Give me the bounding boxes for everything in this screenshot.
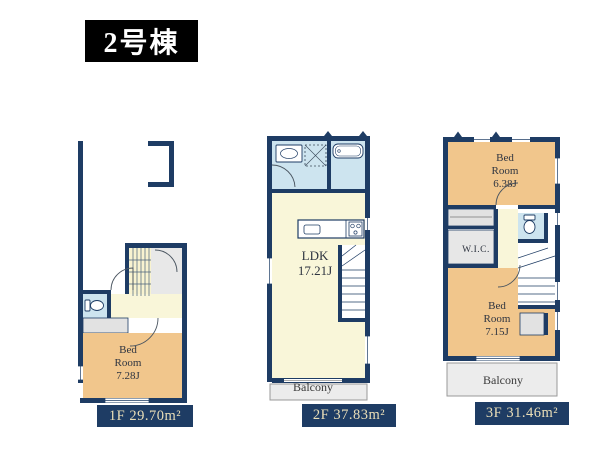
room-label-balcony-2f: Balcony	[278, 381, 348, 395]
stove-icon-2f	[349, 222, 362, 236]
room-label-ldk-2f: LDK 17.21J	[281, 248, 349, 278]
bathtub-icon-2f	[333, 144, 363, 158]
building-title: 2号棟	[85, 20, 198, 62]
room-label-bedroom-1f: Bed Room 7.28J	[95, 344, 161, 382]
toilet-icon-3f	[524, 215, 535, 234]
closet-1f	[83, 318, 128, 333]
room-label-wic-3f: W.I.C.	[446, 245, 506, 256]
vent-marks-3f	[454, 132, 500, 138]
kitchen-counter-2f	[298, 220, 364, 238]
floor-area-label-1f: 1F 29.70m²	[97, 405, 193, 427]
room-label-balcony-3f: Balcony	[468, 374, 538, 388]
vent-marks-2f	[324, 131, 367, 136]
floor-area-label-3f: 3F 31.46m²	[475, 402, 569, 425]
floorplan-page: 2号棟	[0, 0, 600, 450]
floor-area-label-2f: 2F 37.83m²	[302, 404, 396, 427]
sink-icon-2f	[276, 145, 302, 162]
room-label-bedroom-a-3f: Bed Room 6.38J	[470, 152, 540, 190]
closet-upper-3f	[448, 209, 494, 226]
hall-1f	[111, 294, 182, 318]
toilet-icon-1f	[85, 300, 104, 311]
hall-3f	[498, 209, 518, 268]
stairs-3f	[518, 248, 555, 307]
room-label-bedroom-b-3f: Bed Room 7.15J	[462, 300, 532, 338]
